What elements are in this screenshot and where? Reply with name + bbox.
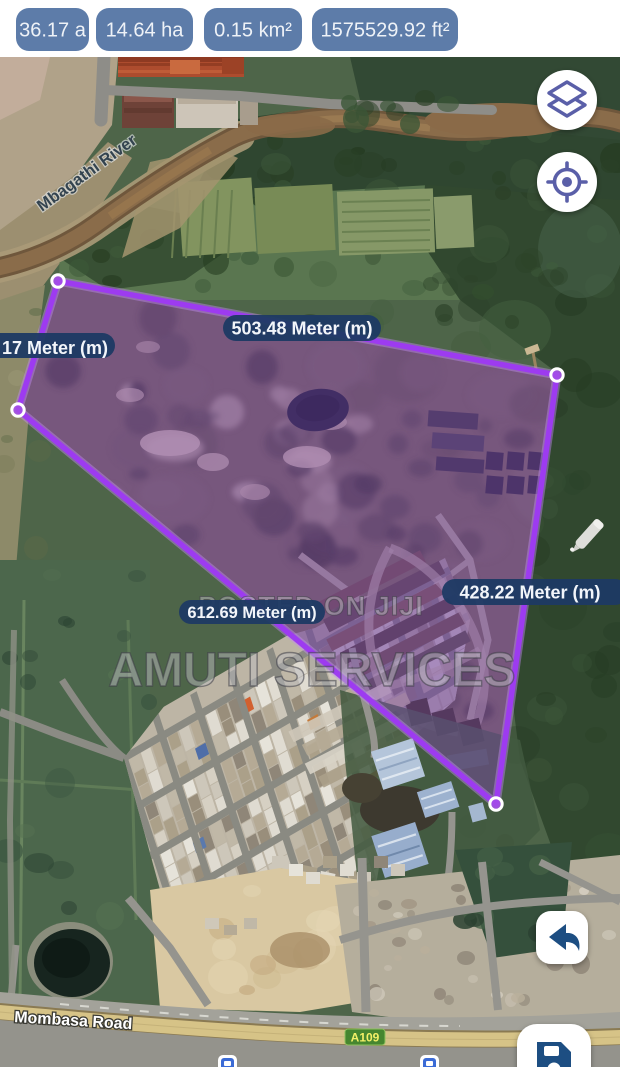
svg-text:14.64 ha: 14.64 ha xyxy=(106,20,185,42)
svg-text:503.48 Meter (m): 503.48 Meter (m) xyxy=(231,318,372,338)
svg-text:36.17 a: 36.17 a xyxy=(19,20,87,42)
svg-text:1575529.92 ft²: 1575529.92 ft² xyxy=(321,20,450,42)
svg-text:A109: A109 xyxy=(351,1031,380,1045)
svg-text:17 Meter (m): 17 Meter (m) xyxy=(2,338,108,358)
svg-text:AMUTI SERVICES: AMUTI SERVICES xyxy=(108,644,515,697)
svg-text:612.69 Meter (m): 612.69 Meter (m) xyxy=(187,604,316,622)
svg-text:0.15 km²: 0.15 km² xyxy=(214,20,292,42)
svg-text:428.22 Meter (m): 428.22 Meter (m) xyxy=(459,582,600,602)
